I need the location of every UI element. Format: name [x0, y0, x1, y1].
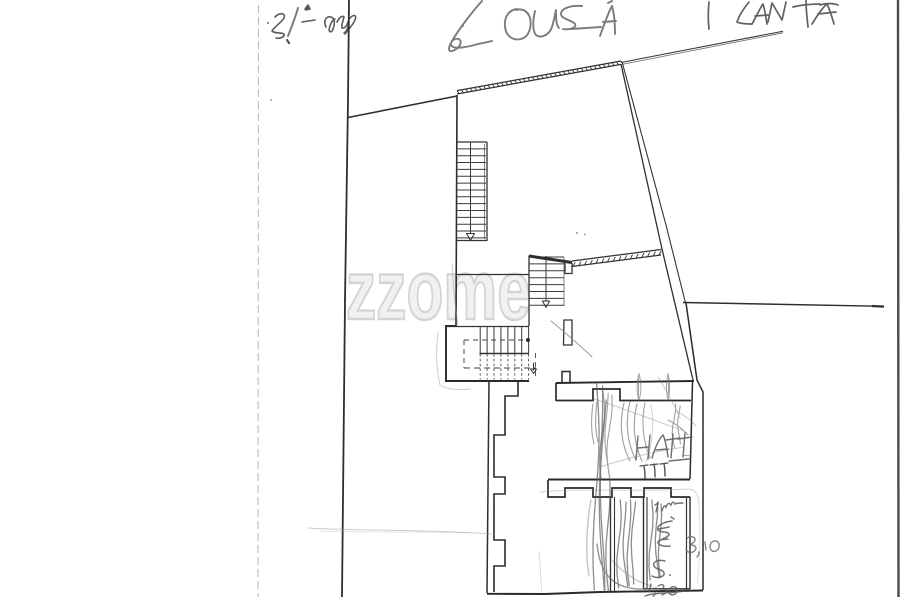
svg-text:zzome: zzome [346, 243, 531, 337]
